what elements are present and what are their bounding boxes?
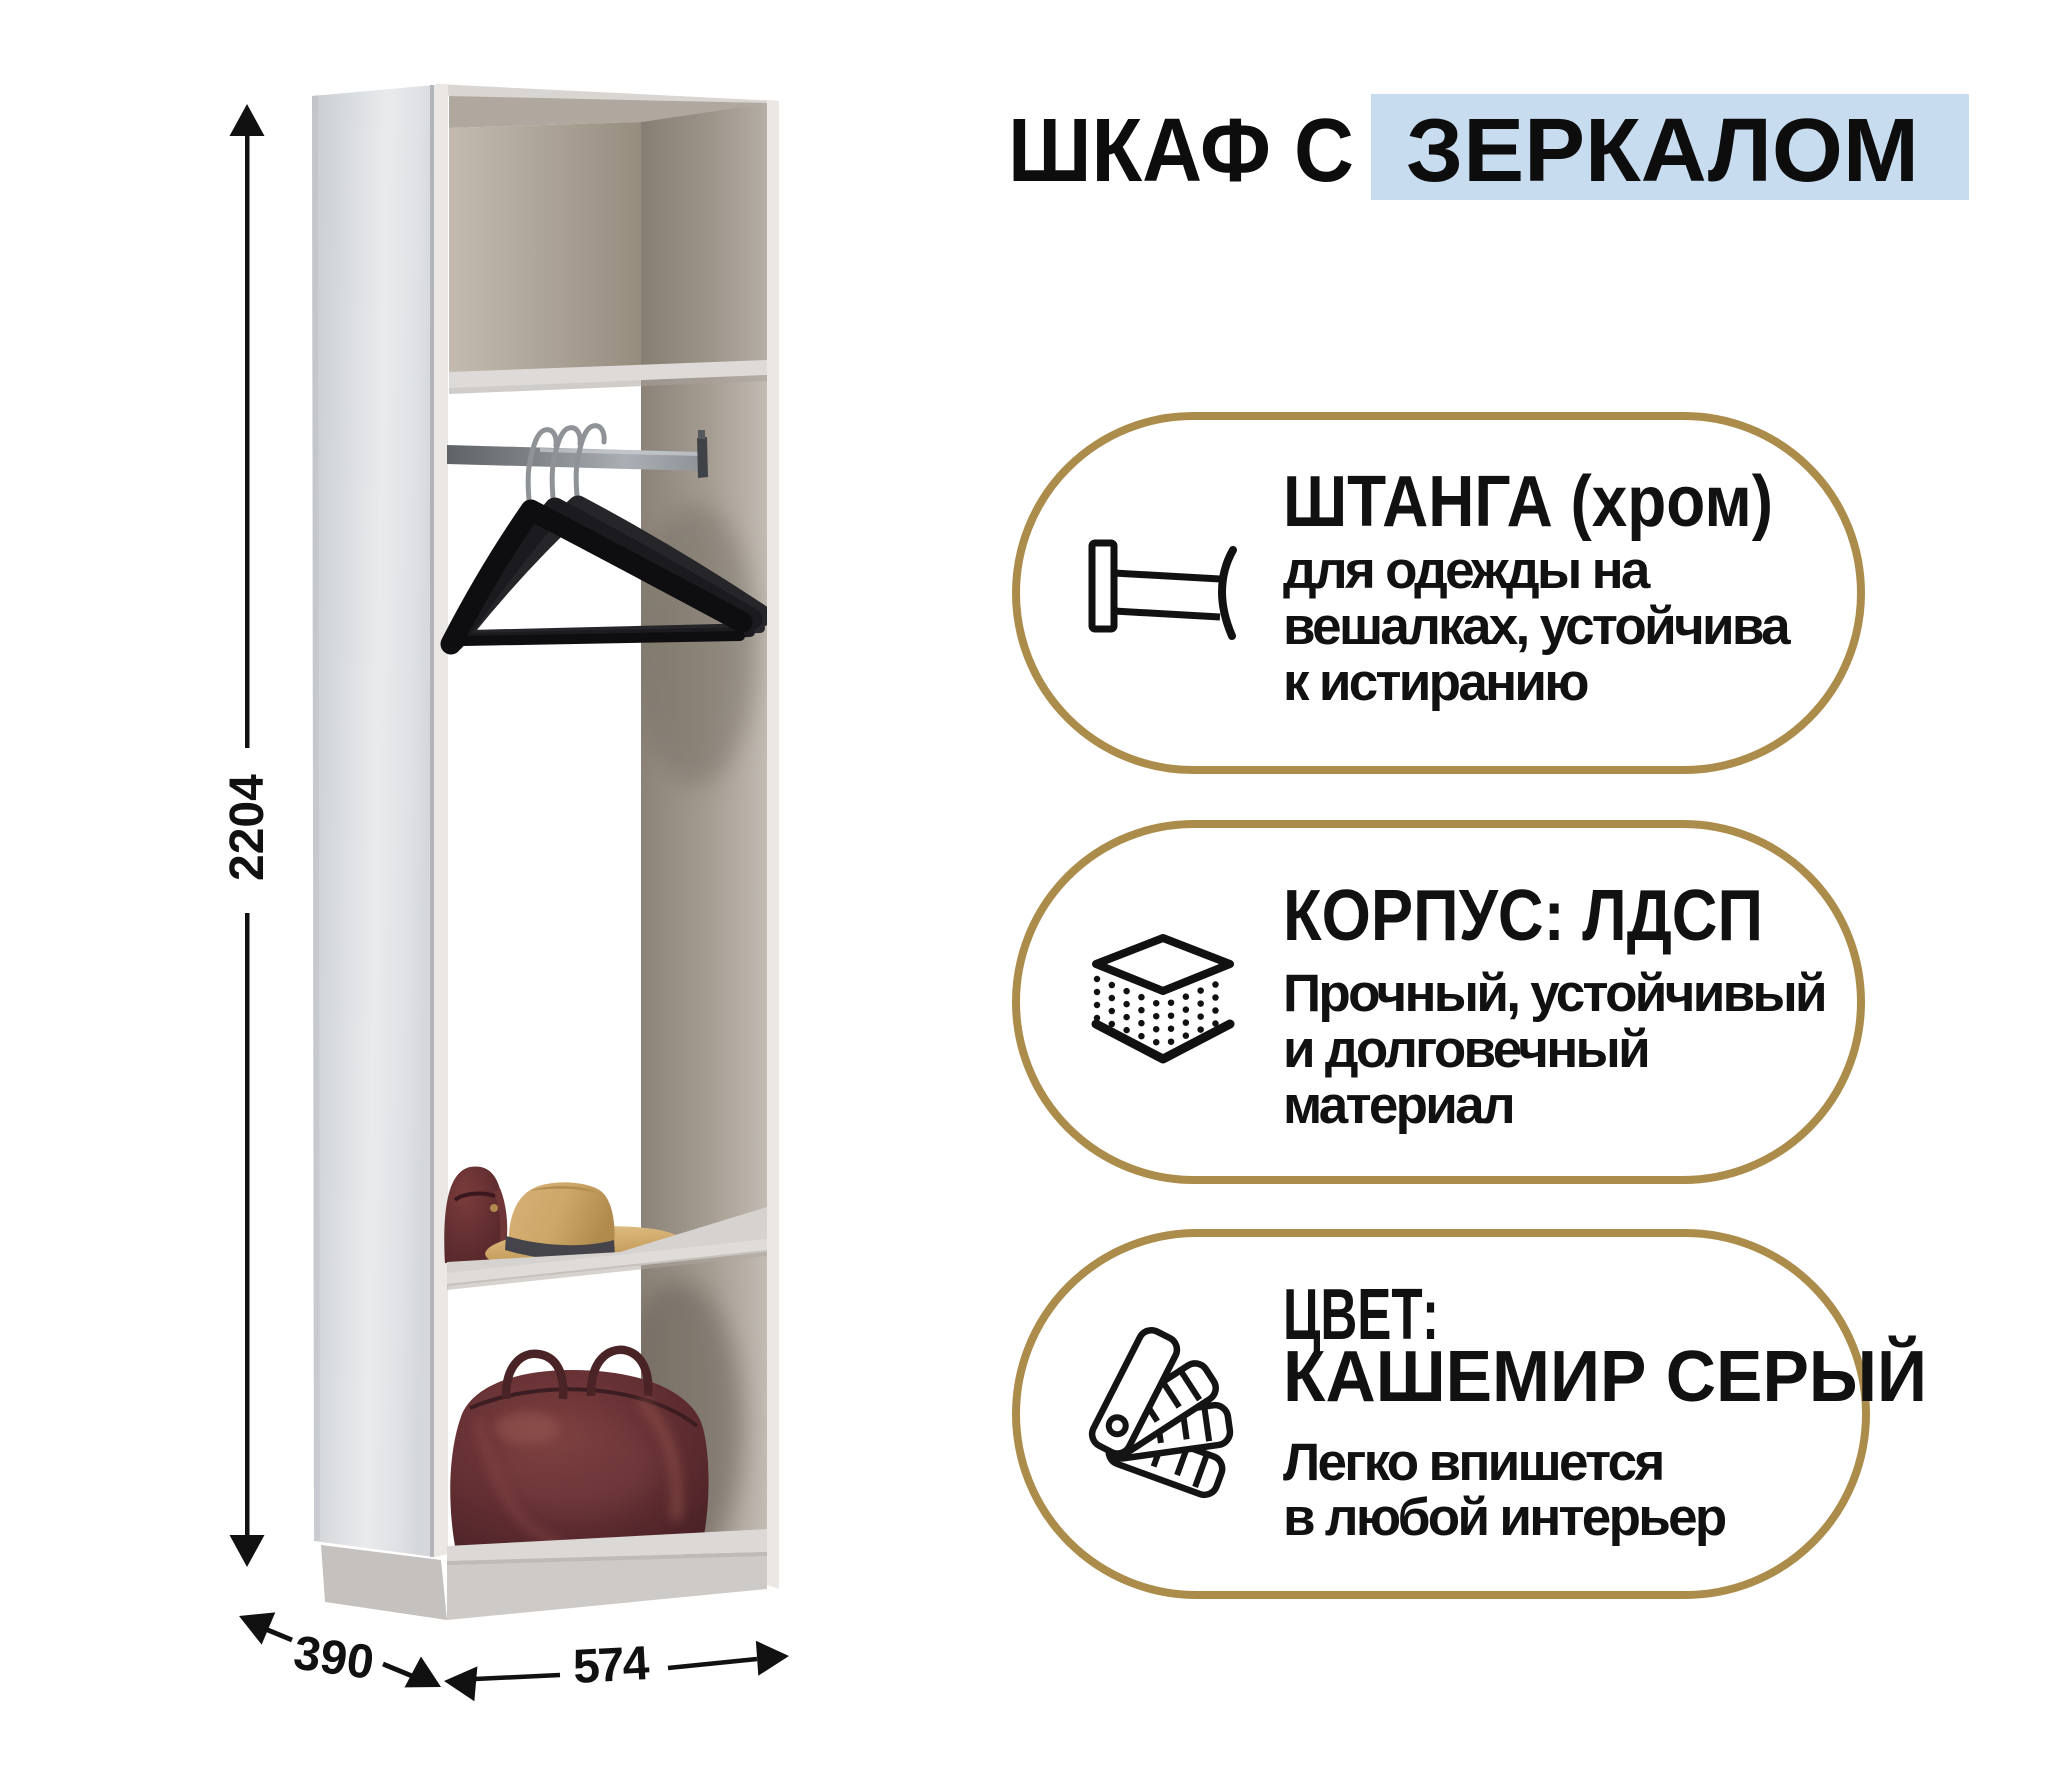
svg-text:Легко впишется: Легко впишется [1283, 1433, 1663, 1492]
svg-text:вешалках, устойчива: вешалках, устойчива [1283, 597, 1791, 656]
svg-text:к истиранию: к истиранию [1283, 653, 1588, 712]
svg-text:ЗЕРКАЛОМ: ЗЕРКАЛОМ [1406, 101, 1919, 201]
svg-text:2204: 2204 [221, 774, 274, 881]
svg-text:ШКАФ С: ШКАФ С [1008, 101, 1354, 201]
svg-text:для одежды на: для одежды на [1283, 541, 1651, 600]
svg-text:материал: материал [1283, 1076, 1513, 1135]
svg-text:КАШЕМИР СЕРЫЙ: КАШЕМИР СЕРЫЙ [1283, 1335, 1927, 1417]
svg-text:КОРПУС: ЛДСП: КОРПУС: ЛДСП [1283, 876, 1763, 956]
svg-text:390: 390 [290, 1626, 377, 1690]
svg-text:ШТАНГА (хром): ШТАНГА (хром) [1283, 462, 1773, 542]
svg-text:в любой интерьер: в любой интерьер [1283, 1488, 1726, 1547]
svg-text:574: 574 [572, 1637, 651, 1694]
svg-text:и долговечный: и долговечный [1283, 1020, 1648, 1079]
svg-text:Прочный, устойчивый: Прочный, устойчивый [1283, 964, 1825, 1023]
